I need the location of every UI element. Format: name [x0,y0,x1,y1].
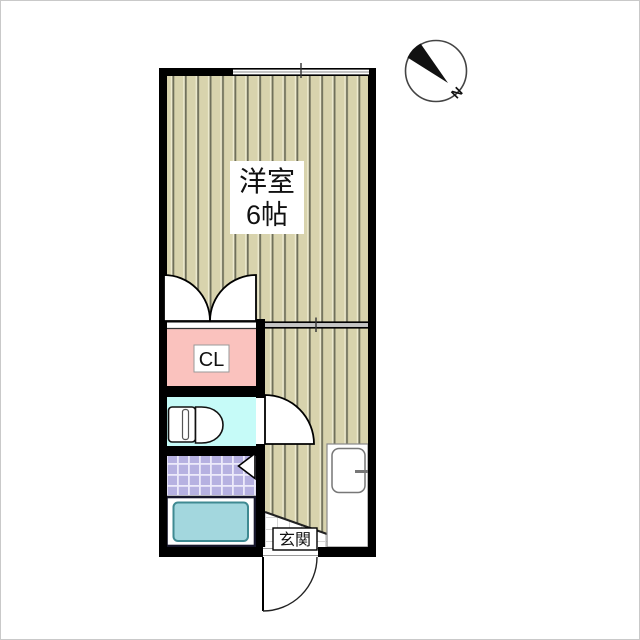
main-room-size: 6帖 [246,200,288,230]
main-room-name: 洋室 [239,166,295,197]
entrance-door [263,557,317,611]
window-top [233,63,369,78]
bathtub-icon [167,497,256,546]
closet-label: CL [194,345,229,372]
wall-closet-toilet [159,386,265,397]
wall-right [368,68,376,557]
entrance-label: 玄関 [273,528,317,550]
compass-rose: N [406,41,467,102]
entrance-label-text: 玄関 [279,531,311,549]
main-room-label: 洋室 6帖 [230,161,304,234]
entrance-door-arc [263,557,317,611]
toilet-door-opening [256,398,265,444]
closet-label-text: CL [199,349,225,371]
floor-plan-drawing: 洋室 6帖 CL 玄関 N [1,1,639,639]
wall-toilet-bath [159,446,265,456]
bathroom-tile-floor [167,456,256,495]
toilet-icon [169,407,224,443]
floor-plan-canvas: 洋室 6帖 CL 玄関 N [0,0,640,640]
kitchen-counter [327,444,370,547]
